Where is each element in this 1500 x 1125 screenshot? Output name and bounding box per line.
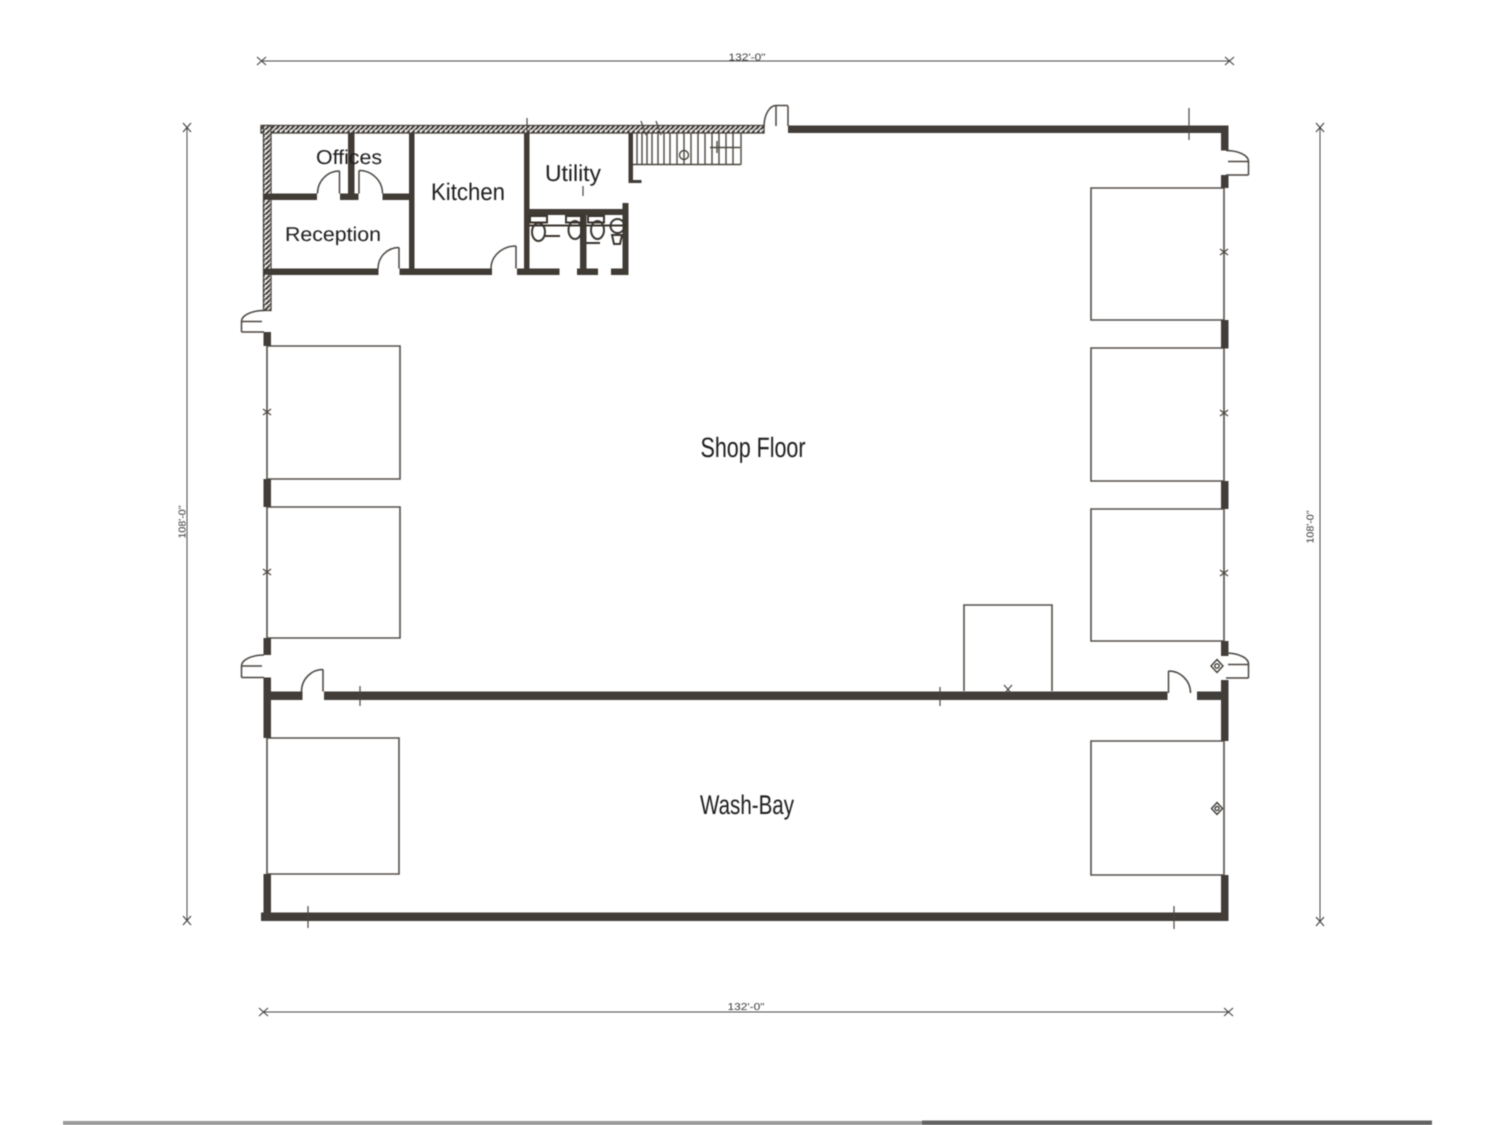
svg-text:Utility: Utility (545, 160, 601, 186)
svg-text:Reception: Reception (285, 224, 381, 246)
svg-text:Wash-Bay: Wash-Bay (700, 790, 794, 820)
svg-text:108'-0": 108'-0" (178, 505, 189, 538)
svg-text:132'-0": 132'-0" (728, 1002, 766, 1013)
svg-text:132'-0": 132'-0" (729, 53, 767, 64)
svg-text:Offices: Offices (316, 147, 382, 169)
svg-text:108'-0": 108'-0" (1306, 510, 1317, 543)
svg-text:Kitchen: Kitchen (431, 179, 505, 206)
svg-text:Shop Floor: Shop Floor (701, 432, 806, 463)
